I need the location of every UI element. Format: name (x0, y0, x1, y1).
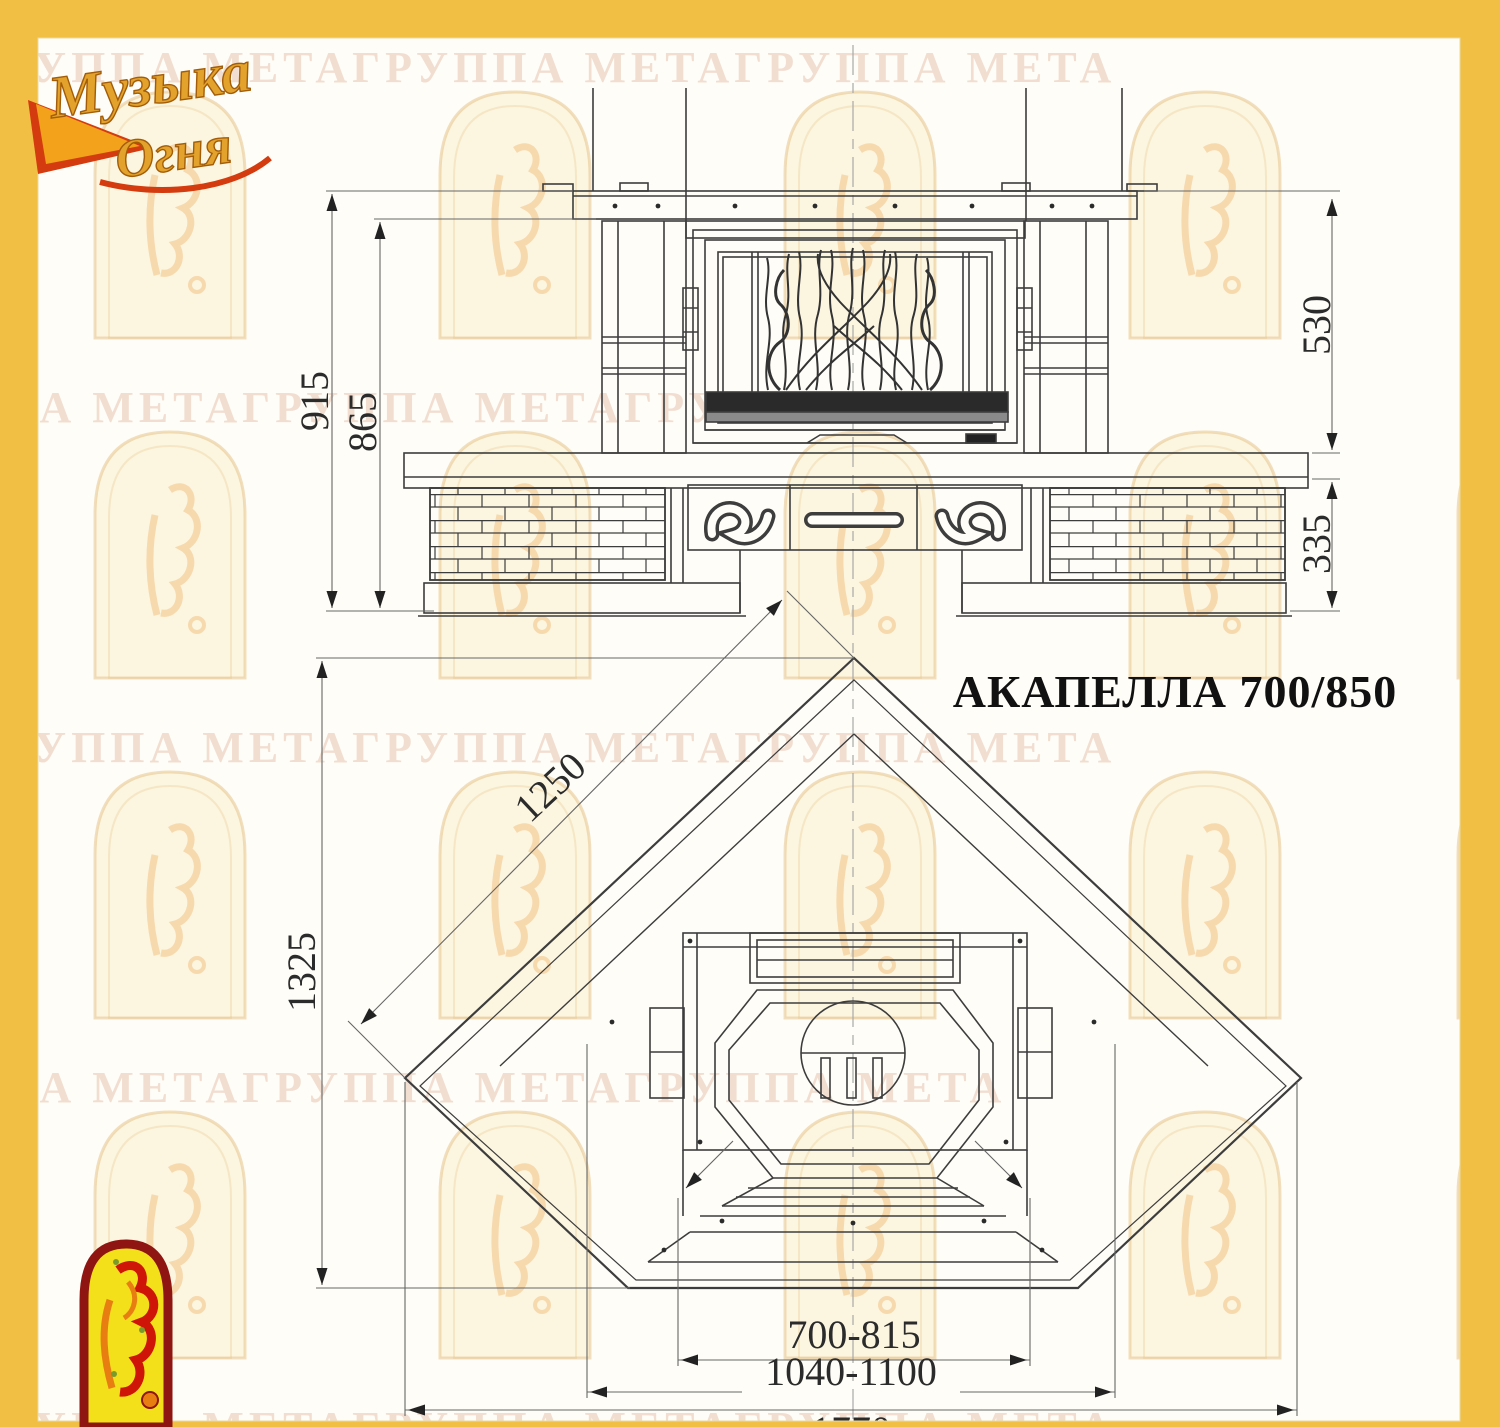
drawing-sheet: ГРУППА МЕТАГРУППА МЕТАГРУППА МЕТА ГРУППА… (0, 0, 1500, 1427)
right-column (1024, 221, 1108, 453)
dim-inner-width-label: 1040-1100 (765, 1349, 937, 1394)
dim-base-section-label: 335 (1294, 514, 1339, 574)
dim-overall-height-label: 915 (292, 371, 337, 431)
dim-height-under-shelf-label: 865 (340, 392, 385, 452)
dim-upper-section-label: 530 (1294, 295, 1339, 355)
model-title: АКАПЕЛЛА 700/850 (953, 666, 1398, 717)
dim-overall-depth-label: 1325 (279, 932, 324, 1012)
brick-pier-left (430, 488, 665, 580)
meta-arch-logo (84, 1244, 168, 1427)
grate-bar (706, 392, 1008, 412)
brick-pier-right (1050, 488, 1285, 580)
